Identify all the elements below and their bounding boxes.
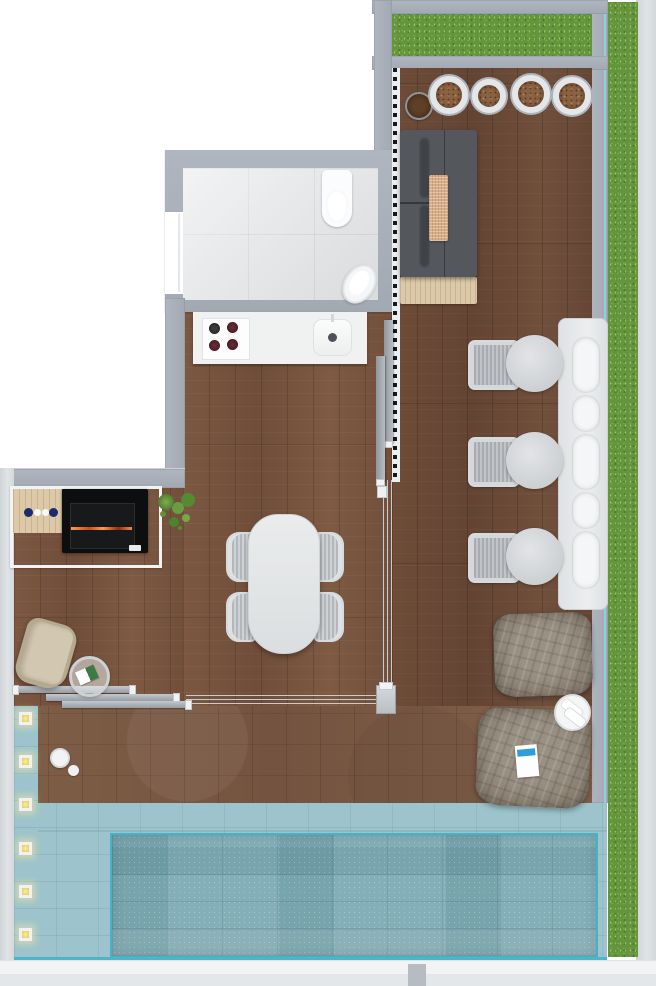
sliding-panel-vertical (376, 356, 385, 482)
navy-plate (24, 508, 33, 517)
pool-ledge-seam (38, 830, 607, 832)
bench-cushion (573, 493, 599, 528)
pool-basin (110, 833, 598, 958)
grill-embers (71, 527, 132, 530)
pool-basin-step (112, 929, 596, 956)
small-pot (405, 92, 433, 120)
plant (158, 494, 174, 510)
burner (209, 323, 220, 334)
top-outer-wall (372, 0, 608, 14)
burner (209, 340, 220, 351)
magazine (515, 744, 540, 778)
top-grass-strip (392, 14, 592, 56)
toilet-bowl (326, 190, 348, 223)
round-planter (512, 75, 550, 113)
white-plate (42, 509, 49, 516)
toilet (322, 170, 352, 227)
round-planter (553, 77, 591, 115)
navy-plate (49, 508, 58, 517)
magazine-on-table (75, 665, 99, 686)
panel-end-cap (185, 700, 192, 710)
burner (227, 339, 238, 350)
bench-cushion (573, 532, 599, 588)
west-wall (0, 468, 185, 488)
sliding-door-track-horizontal (186, 695, 378, 704)
sliding-panel-vertical (384, 320, 393, 444)
round-side-table (506, 528, 563, 585)
panel-end-cap (384, 441, 393, 448)
sink-basin (345, 267, 373, 298)
bench-cushion (573, 396, 599, 431)
pool-light (18, 754, 33, 769)
door-leaf (178, 214, 180, 292)
bean-bag (493, 611, 594, 697)
bbq-side-table (13, 489, 62, 533)
magazine-photo-stripe (517, 748, 536, 757)
right-grass-strip (608, 2, 638, 957)
kitchen-counter (193, 312, 367, 364)
sofa-console (400, 277, 477, 304)
pool-light (18, 927, 33, 942)
sink-drain (328, 333, 337, 342)
grill-basin (70, 503, 135, 549)
living-left-wall (165, 298, 185, 470)
door-corner-post (376, 685, 396, 714)
bottom-outer-band (0, 974, 656, 986)
dining-table (248, 514, 320, 654)
grill-label-chip (129, 545, 141, 551)
sliding-panel-horizontal (46, 694, 176, 701)
door-handle (377, 486, 387, 498)
top-right-section-left-wall (374, 0, 392, 152)
shutter-dashes (393, 68, 397, 482)
towel-table (556, 696, 589, 729)
right-outer-wall (636, 0, 656, 960)
sliding-panel-horizontal (62, 701, 188, 708)
bottom-outer-strip (0, 960, 656, 986)
pool-light (18, 797, 33, 812)
patterned-throw (429, 175, 448, 241)
round-side-table (506, 432, 563, 489)
panel-end-cap (12, 685, 19, 695)
post-cap (379, 682, 393, 690)
bathroom-door-opening (165, 212, 183, 294)
faucet (331, 314, 334, 322)
bench-cushion (573, 435, 599, 489)
round-side-table (506, 335, 563, 392)
white-plate (34, 509, 41, 516)
shutter-track-strip (392, 68, 400, 482)
burner (227, 322, 238, 333)
panel-end-cap (376, 479, 385, 486)
white-pebble (68, 765, 79, 776)
glass-side-table (69, 656, 110, 697)
sofa (400, 130, 477, 277)
pool-light (18, 841, 33, 856)
pool-light (18, 884, 33, 899)
round-planter (472, 79, 506, 113)
bench-cushion (573, 338, 599, 392)
sliding-door-track-vertical (383, 480, 392, 692)
grill (62, 489, 148, 553)
white-vase (50, 748, 70, 768)
round-planter (430, 76, 468, 114)
kitchen-sink (313, 319, 352, 356)
floor-plan (0, 0, 656, 986)
pool-light (18, 711, 33, 726)
bottom-step-block (408, 964, 426, 986)
cooktop (202, 318, 250, 360)
